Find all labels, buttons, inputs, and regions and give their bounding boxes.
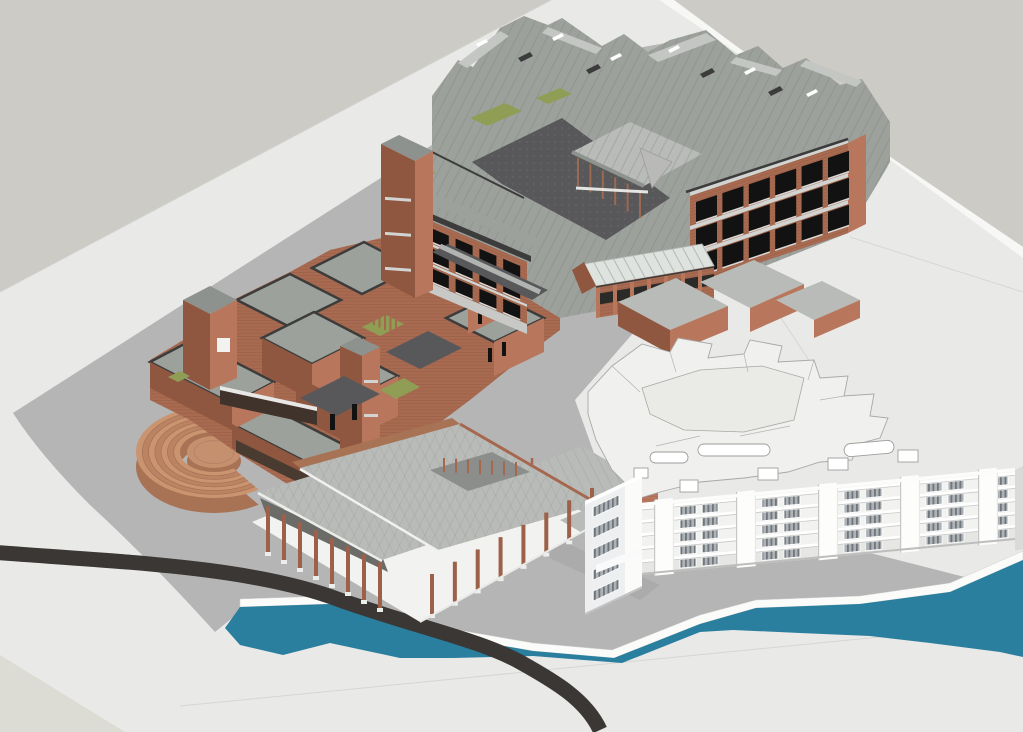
render-viewport (0, 0, 1023, 732)
cluster-tower-left (183, 286, 237, 390)
white-facade-return (1015, 466, 1023, 551)
complex-tower (381, 135, 433, 298)
teaching-complex (381, 16, 890, 354)
site-render (0, 0, 1023, 732)
tower-opening (217, 338, 230, 352)
